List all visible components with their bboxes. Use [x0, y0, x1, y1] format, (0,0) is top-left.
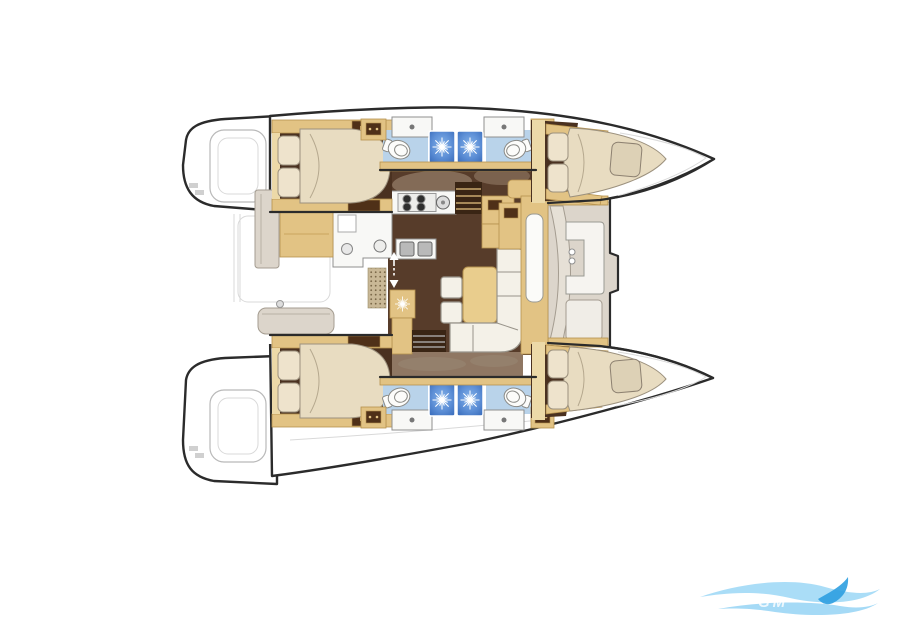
round-sink	[374, 240, 386, 252]
cabin-top-band	[388, 352, 523, 377]
cockpit-bench	[566, 300, 602, 340]
window	[526, 214, 543, 302]
ottoman	[441, 302, 462, 323]
ottoman	[441, 277, 462, 298]
appliance	[338, 215, 356, 232]
dinette-table	[463, 267, 497, 323]
forward-cockpit	[548, 196, 618, 347]
aft-bench	[258, 308, 334, 334]
watermark: GM	[700, 577, 880, 615]
double-sink	[396, 239, 436, 259]
starboard-transom	[183, 356, 277, 484]
seat-cushion	[610, 359, 643, 393]
pillow	[548, 381, 568, 409]
pillow	[548, 164, 568, 192]
shower	[457, 384, 483, 416]
seat-cushion	[610, 142, 643, 177]
pillow	[278, 383, 300, 412]
watermark-wave-icon	[700, 582, 880, 602]
locker-hatch	[361, 119, 386, 140]
watermark-text: GM	[758, 594, 788, 611]
round-sink	[342, 244, 353, 255]
pillow	[278, 351, 300, 380]
saloon-side-wall	[521, 196, 548, 354]
shower	[429, 384, 455, 416]
pillow	[278, 136, 300, 165]
cup-holder	[569, 249, 575, 255]
pillow	[548, 133, 568, 161]
floor-mat	[368, 268, 386, 308]
pillow	[278, 168, 300, 197]
shower	[457, 131, 483, 163]
deck-fitting	[277, 301, 284, 308]
cup-holder	[569, 258, 575, 264]
catamaran-floorplan: GM	[0, 0, 900, 630]
shower	[429, 131, 455, 163]
companionway-port	[455, 182, 482, 214]
deck-rosette	[390, 290, 415, 354]
pillow	[548, 350, 568, 378]
companionway-starboard	[412, 330, 446, 352]
locker-hatch	[361, 407, 386, 428]
